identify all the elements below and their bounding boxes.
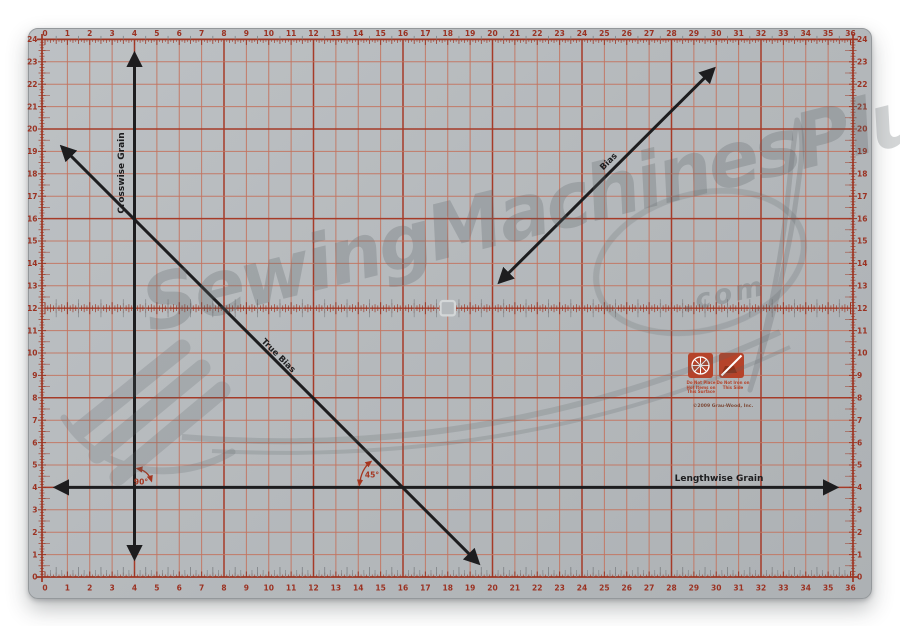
svg-text:18: 18 — [27, 170, 37, 179]
svg-text:36: 36 — [845, 29, 855, 38]
svg-text:17: 17 — [420, 29, 430, 38]
warning-line: This Side — [711, 386, 755, 391]
svg-text:0: 0 — [857, 573, 862, 582]
svg-text:13: 13 — [857, 282, 867, 291]
svg-text:6: 6 — [177, 29, 182, 38]
svg-text:28: 28 — [666, 584, 676, 593]
svg-text:7: 7 — [199, 584, 204, 593]
svg-text:3: 3 — [110, 584, 115, 593]
svg-text:9: 9 — [32, 371, 37, 380]
crosswise-grain-label: Crosswise Grain — [117, 132, 127, 213]
warning-caption-right: Do Not Iron on This Side — [711, 381, 755, 390]
svg-text:24: 24 — [577, 584, 587, 593]
svg-text:11: 11 — [857, 326, 867, 335]
svg-text:27: 27 — [644, 584, 654, 593]
svg-text:22: 22 — [532, 584, 542, 593]
svg-text:0: 0 — [42, 584, 47, 593]
svg-text:11: 11 — [286, 29, 296, 38]
svg-text:35: 35 — [823, 584, 833, 593]
svg-text:29: 29 — [689, 29, 699, 38]
svg-text:10: 10 — [264, 29, 274, 38]
center-square-marker — [441, 301, 455, 315]
svg-text:6: 6 — [177, 584, 182, 593]
svg-text:23: 23 — [554, 584, 564, 593]
svg-text:23: 23 — [554, 29, 564, 38]
svg-text:17: 17 — [420, 584, 430, 593]
svg-text:0: 0 — [42, 29, 47, 38]
svg-text:5: 5 — [857, 461, 862, 470]
svg-text:22: 22 — [532, 29, 542, 38]
svg-text:9: 9 — [244, 29, 249, 38]
svg-text:21: 21 — [510, 584, 520, 593]
svg-text:17: 17 — [857, 192, 867, 201]
svg-text:9: 9 — [857, 371, 862, 380]
svg-text:6: 6 — [857, 438, 862, 447]
svg-text:12: 12 — [308, 29, 318, 38]
mat-print-svg: 0011223344556677889910101111121213131414… — [0, 0, 900, 626]
svg-text:14: 14 — [353, 584, 363, 593]
svg-text:30: 30 — [711, 29, 721, 38]
svg-text:7: 7 — [199, 29, 204, 38]
svg-text:20: 20 — [27, 125, 37, 134]
svg-text:24: 24 — [27, 35, 37, 44]
svg-text:5: 5 — [154, 29, 159, 38]
svg-text:1: 1 — [65, 29, 70, 38]
svg-text:7: 7 — [857, 416, 862, 425]
svg-text:9: 9 — [244, 584, 249, 593]
svg-text:32: 32 — [756, 584, 766, 593]
svg-text:20: 20 — [487, 584, 497, 593]
angle-45-label: 45° — [365, 471, 379, 480]
svg-text:31: 31 — [733, 29, 743, 38]
svg-text:8: 8 — [221, 29, 226, 38]
svg-text:33: 33 — [778, 584, 788, 593]
svg-text:21: 21 — [510, 29, 520, 38]
svg-text:18: 18 — [443, 584, 453, 593]
svg-text:2: 2 — [857, 528, 862, 537]
svg-text:19: 19 — [465, 584, 475, 593]
svg-text:16: 16 — [27, 214, 37, 223]
svg-text:4: 4 — [132, 584, 137, 593]
watermark: SewingMachinesPlus .com — [64, 59, 900, 477]
svg-text:13: 13 — [27, 282, 37, 291]
svg-text:11: 11 — [27, 326, 37, 335]
svg-text:14: 14 — [353, 29, 363, 38]
svg-text:0: 0 — [32, 573, 37, 582]
svg-text:4: 4 — [32, 483, 37, 492]
watermark-spool-graphic — [64, 348, 232, 477]
svg-text:20: 20 — [487, 29, 497, 38]
svg-text:17: 17 — [27, 192, 37, 201]
svg-text:7: 7 — [32, 416, 37, 425]
svg-text:2: 2 — [87, 584, 92, 593]
svg-text:12: 12 — [308, 584, 318, 593]
svg-text:2: 2 — [87, 29, 92, 38]
svg-text:33: 33 — [778, 29, 788, 38]
svg-text:27: 27 — [644, 29, 654, 38]
svg-text:6: 6 — [32, 438, 37, 447]
svg-text:16: 16 — [857, 214, 867, 223]
svg-text:1: 1 — [65, 584, 70, 593]
svg-text:15: 15 — [27, 237, 37, 246]
svg-text:13: 13 — [331, 29, 341, 38]
svg-text:2: 2 — [32, 528, 37, 537]
product-photo: 0011223344556677889910101111121213131414… — [0, 0, 900, 626]
svg-text:10: 10 — [857, 349, 867, 358]
svg-text:4: 4 — [132, 29, 137, 38]
svg-text:1: 1 — [857, 550, 862, 559]
svg-text:25: 25 — [599, 584, 609, 593]
svg-text:3: 3 — [110, 29, 115, 38]
svg-text:1: 1 — [32, 550, 37, 559]
svg-text:10: 10 — [27, 349, 37, 358]
warning-line: This Surface — [679, 390, 723, 395]
svg-text:19: 19 — [465, 29, 475, 38]
svg-text:22: 22 — [27, 80, 37, 89]
svg-text:15: 15 — [857, 237, 867, 246]
svg-text:11: 11 — [286, 584, 296, 593]
svg-text:28: 28 — [666, 29, 676, 38]
svg-text:8: 8 — [221, 584, 226, 593]
svg-text:32: 32 — [756, 29, 766, 38]
svg-text:12: 12 — [27, 304, 37, 313]
svg-text:16: 16 — [398, 584, 408, 593]
angle-90-label: 90° — [134, 478, 148, 487]
svg-text:5: 5 — [32, 461, 37, 470]
svg-text:35: 35 — [823, 29, 833, 38]
svg-text:31: 31 — [733, 584, 743, 593]
svg-text:8: 8 — [32, 394, 37, 403]
svg-text:36: 36 — [845, 584, 855, 593]
svg-text:3: 3 — [857, 506, 862, 515]
svg-text:15: 15 — [375, 584, 385, 593]
svg-text:14: 14 — [27, 259, 37, 268]
svg-text:26: 26 — [622, 29, 632, 38]
svg-text:29: 29 — [689, 584, 699, 593]
svg-text:18: 18 — [443, 29, 453, 38]
svg-text:30: 30 — [711, 584, 721, 593]
svg-text:21: 21 — [27, 102, 37, 111]
svg-text:14: 14 — [857, 259, 867, 268]
svg-text:34: 34 — [801, 29, 811, 38]
svg-text:23: 23 — [27, 58, 37, 67]
lengthwise-grain-label: Lengthwise Grain — [675, 474, 764, 484]
svg-text:25: 25 — [599, 29, 609, 38]
copyright-text: ©2009 Grau-Wood, Inc. — [693, 404, 753, 409]
svg-text:24: 24 — [857, 35, 867, 44]
svg-text:34: 34 — [801, 584, 811, 593]
svg-text:24: 24 — [577, 29, 587, 38]
svg-text:16: 16 — [398, 29, 408, 38]
svg-text:4: 4 — [857, 483, 862, 492]
svg-text:26: 26 — [622, 584, 632, 593]
svg-text:12: 12 — [857, 304, 867, 313]
svg-text:15: 15 — [375, 29, 385, 38]
svg-text:23: 23 — [857, 58, 867, 67]
svg-text:10: 10 — [264, 584, 274, 593]
svg-text:19: 19 — [27, 147, 37, 156]
svg-text:8: 8 — [857, 394, 862, 403]
svg-text:5: 5 — [154, 584, 159, 593]
svg-text:3: 3 — [32, 506, 37, 515]
svg-text:13: 13 — [331, 584, 341, 593]
